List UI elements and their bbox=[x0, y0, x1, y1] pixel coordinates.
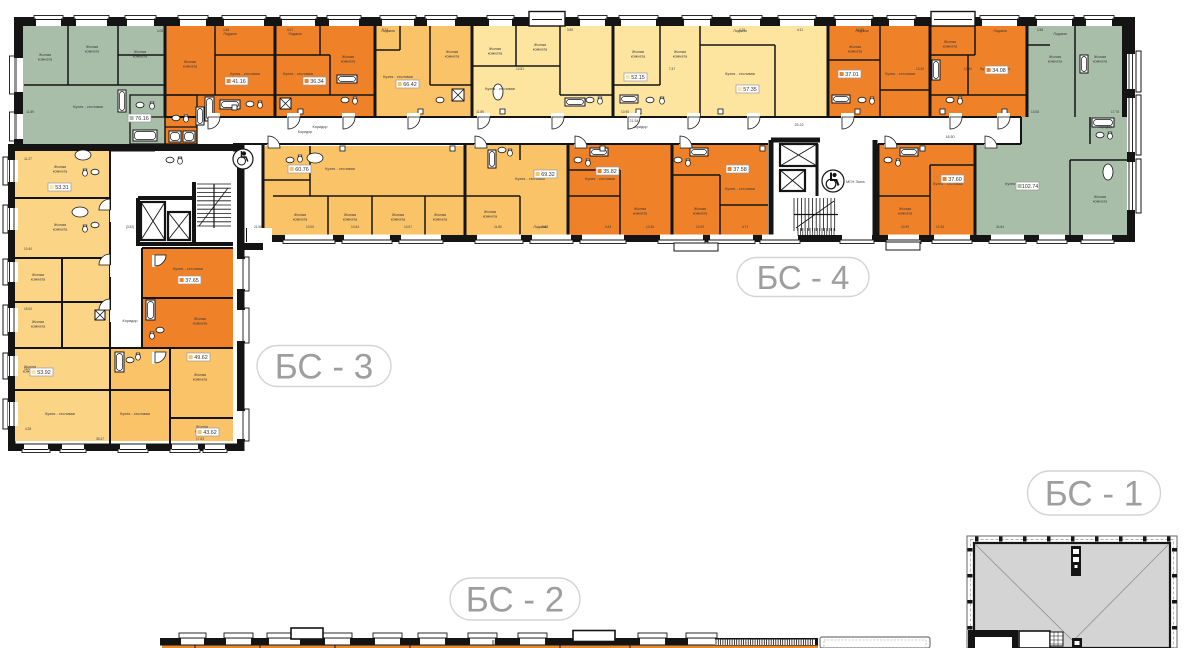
svg-text:37.65: 37.65 bbox=[185, 278, 199, 284]
svg-text:Кухня - столовая: Кухня - столовая bbox=[383, 75, 413, 79]
svg-text:3.74: 3.74 bbox=[382, 28, 388, 32]
svg-text:комната: комната bbox=[193, 322, 208, 326]
svg-text:Жилая: Жилая bbox=[899, 207, 911, 211]
svg-text:Жилая: Жилая bbox=[484, 210, 496, 214]
svg-text:комната: комната bbox=[38, 58, 53, 62]
svg-text:Жилая: Жилая bbox=[342, 55, 354, 59]
svg-text:комната: комната bbox=[1093, 200, 1108, 204]
svg-text:14.99: 14.99 bbox=[856, 28, 864, 32]
svg-text:11.80: 11.80 bbox=[494, 225, 502, 229]
svg-text:БС - 3: БС - 3 bbox=[275, 348, 373, 387]
svg-text:комната: комната bbox=[445, 55, 460, 59]
svg-text:Коридор: Коридор bbox=[313, 125, 328, 129]
svg-text:Лоджия: Лоджия bbox=[1053, 32, 1066, 36]
svg-text:Кухня - столовая: Кухня - столовая bbox=[325, 167, 355, 171]
svg-text:комната: комната bbox=[85, 50, 100, 54]
svg-text:13.30: 13.30 bbox=[916, 67, 924, 71]
svg-text:МГН Зона: МГН Зона bbox=[846, 179, 865, 184]
svg-text:Лоджия: Лоджия bbox=[288, 32, 301, 36]
svg-text:Кухня - столовая: Кухня - столовая bbox=[585, 177, 615, 181]
svg-text:60.76: 60.76 bbox=[295, 167, 309, 173]
svg-text:Кухня - столовая: Кухня - столовая bbox=[725, 72, 755, 76]
svg-text:комната: комната bbox=[1048, 60, 1063, 64]
svg-text:Жилая: Жилая bbox=[86, 45, 98, 49]
svg-text:4.76: 4.76 bbox=[739, 28, 745, 32]
svg-text:Кухня - столовая: Кухня - столовая bbox=[230, 72, 260, 76]
svg-text:БС - 1: БС - 1 bbox=[1045, 475, 1143, 514]
svg-text:49.62: 49.62 bbox=[194, 355, 208, 361]
svg-text:Жилая: Жилая bbox=[344, 213, 356, 217]
svg-text:7.47: 7.47 bbox=[669, 67, 675, 71]
svg-text:Кухня - столовая: Кухня - столовая bbox=[120, 412, 150, 416]
svg-text:Жилая: Жилая bbox=[134, 50, 146, 54]
svg-text:Жилая: Жилая bbox=[489, 47, 501, 51]
svg-text:10.99: 10.99 bbox=[901, 225, 909, 229]
svg-text:21.54: 21.54 bbox=[630, 119, 639, 123]
svg-text:Жилая: Жилая bbox=[32, 273, 44, 277]
svg-text:Жилая: Жилая bbox=[194, 317, 206, 321]
svg-text:Жилая: Жилая bbox=[1094, 55, 1106, 59]
svg-text:Жилая: Жилая bbox=[54, 165, 66, 169]
svg-text:4.11: 4.11 bbox=[797, 28, 803, 32]
svg-text:комната: комната bbox=[1093, 60, 1108, 64]
svg-text:Кухня - столовая: Кухня - столовая bbox=[45, 412, 75, 416]
svg-text:3.89: 3.89 bbox=[567, 28, 573, 32]
svg-text:34.08: 34.08 bbox=[992, 68, 1006, 74]
svg-text:10.50: 10.50 bbox=[964, 67, 972, 71]
svg-text:комната: комната bbox=[343, 218, 358, 222]
svg-text:Жилая: Жилая bbox=[32, 320, 44, 324]
svg-text:Кухня - столовая: Кухня - столовая bbox=[73, 105, 103, 109]
svg-text:Жилая: Жилая bbox=[1049, 55, 1061, 59]
svg-text:21.98: 21.98 bbox=[254, 225, 262, 229]
svg-text:37.58: 37.58 bbox=[733, 167, 747, 173]
svg-text:Жилая: Жилая bbox=[434, 213, 446, 217]
svg-text:34.64: 34.64 bbox=[996, 225, 1004, 229]
svg-text:10.64: 10.64 bbox=[351, 225, 359, 229]
svg-text:18.50: 18.50 bbox=[946, 135, 955, 139]
svg-text:Жилая: Жилая bbox=[632, 50, 644, 54]
svg-text:10.36: 10.36 bbox=[646, 225, 654, 229]
svg-text:4.28: 4.28 bbox=[25, 427, 31, 431]
svg-text:Жилая: Жилая bbox=[1094, 195, 1106, 199]
svg-text:43.62: 43.62 bbox=[203, 430, 217, 436]
svg-text:36.34: 36.34 bbox=[310, 79, 324, 85]
svg-text:Жилая: Жилая bbox=[634, 207, 646, 211]
svg-text:25.22: 25.22 bbox=[795, 123, 804, 127]
svg-text:69.32: 69.32 bbox=[541, 172, 555, 178]
svg-text:комната: комната bbox=[53, 228, 68, 232]
svg-text:комната: комната bbox=[848, 50, 863, 54]
svg-text:комната: комната bbox=[183, 65, 198, 69]
svg-text:комната: комната bbox=[943, 45, 958, 49]
svg-text:комната: комната bbox=[133, 55, 148, 59]
svg-text:Коридор: Коридор bbox=[298, 130, 312, 134]
svg-text:Кухня - столовая: Кухня - столовая bbox=[885, 72, 915, 76]
svg-text:Кухня - столовая: Кухня - столовая bbox=[173, 267, 203, 271]
svg-text:Жилая: Жилая bbox=[392, 213, 404, 217]
svg-text:Жилая: Жилая bbox=[849, 45, 861, 49]
svg-text:10.36: 10.36 bbox=[936, 225, 944, 229]
svg-text:4.88: 4.88 bbox=[223, 28, 229, 32]
svg-text:Жилая: Жилая bbox=[944, 40, 956, 44]
svg-text:комната: комната bbox=[693, 212, 708, 216]
svg-text:комната: комната bbox=[633, 212, 648, 216]
svg-text:Жилая: Жилая bbox=[294, 213, 306, 217]
svg-text:комната: комната bbox=[483, 215, 498, 219]
svg-text:4.07: 4.07 bbox=[287, 28, 293, 32]
svg-text:3.63: 3.63 bbox=[542, 225, 548, 229]
svg-text:53.92: 53.92 bbox=[37, 370, 51, 376]
svg-text:комната: комната bbox=[391, 218, 406, 222]
svg-text:комната: комната bbox=[341, 60, 356, 64]
svg-text:БС - 2: БС - 2 bbox=[466, 581, 564, 620]
svg-text:52.15: 52.15 bbox=[631, 75, 645, 81]
svg-text:Жилая: Жилая bbox=[184, 60, 196, 64]
svg-text:10.00: 10.00 bbox=[306, 225, 314, 229]
svg-text:17.83: 17.83 bbox=[196, 437, 204, 441]
svg-text:Кухня - столовая: Кухня - столовая bbox=[725, 187, 755, 191]
svg-text:комната: комната bbox=[193, 378, 208, 382]
svg-text:БС - 4: БС - 4 bbox=[757, 259, 850, 296]
svg-text:комната: комната bbox=[293, 218, 308, 222]
svg-text:11.27: 11.27 bbox=[24, 157, 32, 161]
svg-text:Жилая: Жилая bbox=[694, 207, 706, 211]
svg-text:комната: комната bbox=[31, 278, 46, 282]
svg-text:17.75: 17.75 bbox=[1111, 110, 1119, 114]
svg-text:35.47: 35.47 bbox=[96, 437, 104, 441]
svg-text:комната: комната bbox=[433, 218, 448, 222]
svg-text:102.74: 102.74 bbox=[1022, 184, 1039, 190]
svg-text:15.00: 15.00 bbox=[24, 307, 32, 311]
svg-text:4.08: 4.08 bbox=[157, 29, 163, 33]
svg-text:10.07: 10.07 bbox=[404, 225, 412, 229]
svg-text:Жилая: Жилая bbox=[54, 223, 66, 227]
svg-text:комната: комната bbox=[673, 55, 688, 59]
svg-text:37.01: 37.01 bbox=[845, 72, 859, 78]
svg-text:Лоджия: Лоджия bbox=[993, 29, 1006, 33]
svg-text:10.40: 10.40 bbox=[24, 247, 32, 251]
svg-text:4.71: 4.71 bbox=[742, 225, 748, 229]
svg-text:10.81: 10.81 bbox=[516, 67, 524, 71]
svg-text:10.99: 10.99 bbox=[696, 225, 704, 229]
svg-text:53.31: 53.31 bbox=[55, 185, 69, 191]
svg-text:комната: комната bbox=[533, 48, 548, 52]
svg-text:3.58: 3.58 bbox=[1037, 28, 1043, 32]
svg-text:комната: комната bbox=[53, 170, 68, 174]
svg-text:35.82: 35.82 bbox=[603, 169, 617, 175]
svg-text:Жилая: Жилая bbox=[39, 53, 51, 57]
svg-text:Жилая: Жилая bbox=[446, 50, 458, 54]
svg-text:Жилая: Жилая bbox=[674, 50, 686, 54]
svg-text:комната: комната bbox=[31, 325, 46, 329]
svg-text:11.89: 11.89 bbox=[26, 110, 34, 114]
svg-text:Лоджия: Лоджия bbox=[223, 32, 236, 36]
svg-text:Коридор: Коридор bbox=[123, 319, 138, 323]
svg-text:37.60: 37.60 bbox=[948, 177, 962, 183]
svg-text:комната: комната bbox=[898, 212, 913, 216]
svg-text:комната: комната bbox=[631, 55, 646, 59]
svg-text:57.35: 57.35 bbox=[743, 87, 757, 93]
svg-text:13.08: 13.08 bbox=[1031, 110, 1039, 114]
svg-text:Кухня - столовая: Кухня - столовая bbox=[283, 72, 313, 76]
svg-text:Кухня - столовая: Кухня - столовая bbox=[485, 87, 515, 91]
svg-text:3.43: 3.43 bbox=[605, 225, 611, 229]
svg-text:Коридор: Коридор bbox=[1098, 125, 1113, 129]
svg-text:Жилая: Жилая bbox=[534, 43, 546, 47]
svg-text:комната: комната bbox=[488, 52, 503, 56]
svg-text:41.16: 41.16 bbox=[232, 79, 246, 85]
svg-text:76.16: 76.16 bbox=[135, 116, 149, 122]
svg-text:66.42: 66.42 bbox=[403, 82, 417, 88]
svg-text:(3.52): (3.52) bbox=[126, 225, 134, 229]
svg-text:Жилая: Жилая bbox=[194, 373, 206, 377]
